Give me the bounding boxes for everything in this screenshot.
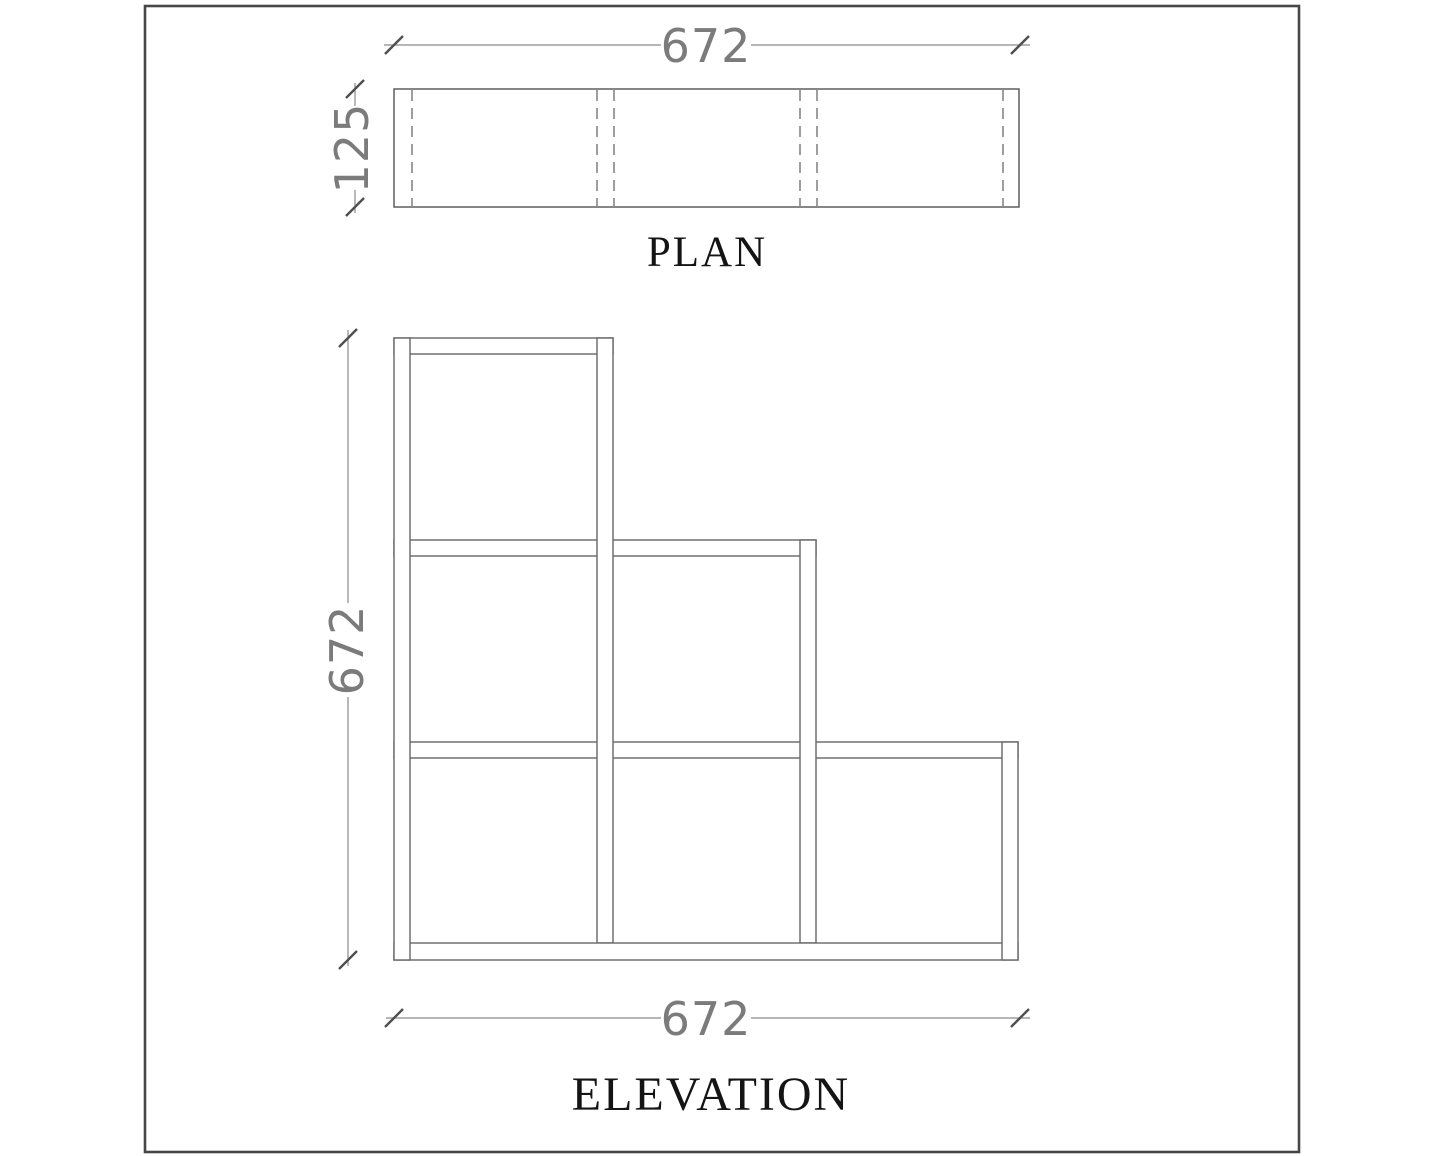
elevation-right-panel bbox=[1002, 742, 1018, 960]
elevation-divider-2 bbox=[800, 540, 816, 943]
plan-width-dimension: 672 bbox=[384, 19, 1030, 73]
cad-drawing: 672 125 PLAN bbox=[0, 0, 1445, 1156]
plan-outline bbox=[394, 89, 1019, 207]
elevation-bottom-panel bbox=[394, 943, 1018, 960]
elevation-width-dimension: 672 bbox=[385, 992, 1030, 1046]
elevation-shelf-row3 bbox=[394, 742, 1018, 758]
elevation-title: ELEVATION bbox=[572, 1068, 850, 1121]
elevation-height-value: 672 bbox=[320, 605, 374, 696]
elevation-left-panel bbox=[394, 338, 410, 960]
plan-depth-dimension: 125 bbox=[325, 80, 379, 216]
drawing-sheet: 672 125 PLAN bbox=[0, 0, 1445, 1156]
plan-depth-value: 125 bbox=[325, 103, 379, 194]
plan-width-value: 672 bbox=[661, 19, 752, 73]
plan-title: PLAN bbox=[647, 229, 767, 276]
elevation-top-panel bbox=[394, 338, 613, 354]
plan-view: 672 125 PLAN bbox=[325, 19, 1030, 276]
elevation-width-value: 672 bbox=[661, 992, 752, 1046]
elevation-divider-1 bbox=[597, 338, 613, 943]
elevation-height-dimension: 672 bbox=[320, 329, 374, 969]
elevation-view: 672 672 ELEVATION bbox=[320, 329, 1030, 1121]
